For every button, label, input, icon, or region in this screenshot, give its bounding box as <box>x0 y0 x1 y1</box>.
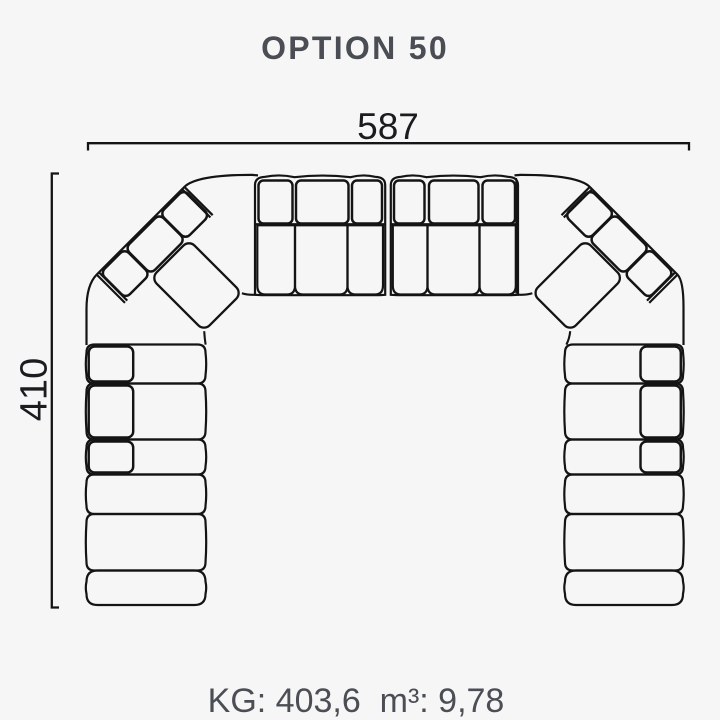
svg-text:OPTION 50: OPTION 50 <box>261 30 449 66</box>
svg-text:587: 587 <box>357 106 419 147</box>
svg-text:KG: 403,6 m³: 9,78: KG: 403,6 m³: 9,78 <box>208 682 505 720</box>
svg-text:410: 410 <box>14 358 56 421</box>
